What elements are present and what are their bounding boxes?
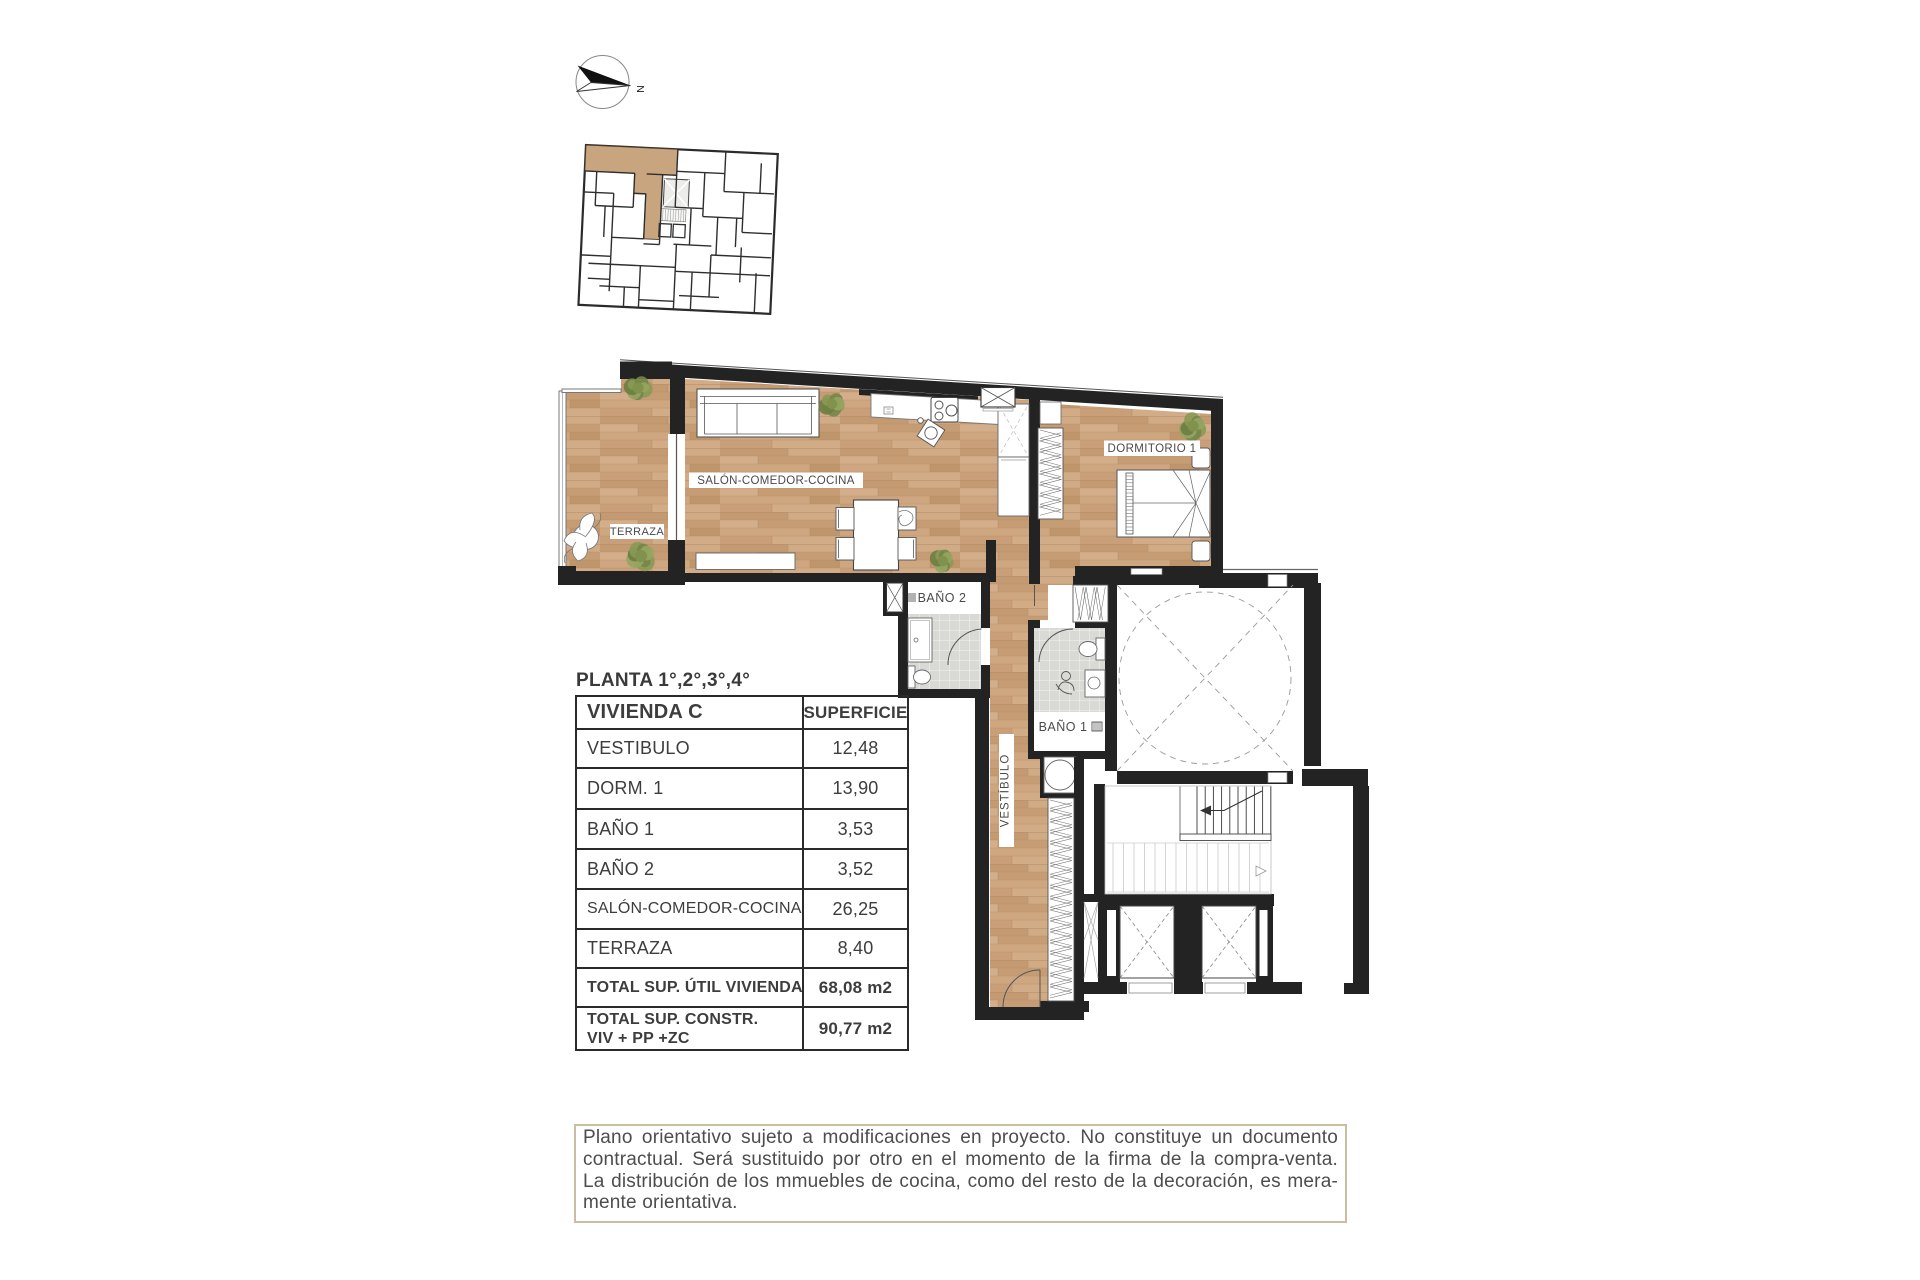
svg-text:SALÓN-COMEDOR-COCINA: SALÓN-COMEDOR-COCINA bbox=[697, 474, 854, 487]
svg-text:N: N bbox=[634, 85, 646, 93]
svg-text:BAÑO 2: BAÑO 2 bbox=[918, 591, 967, 605]
svg-text:TERRAZA: TERRAZA bbox=[610, 526, 664, 538]
svg-text:VESTÍBULO: VESTÍBULO bbox=[999, 754, 1012, 828]
svg-text:BAÑO 1: BAÑO 1 bbox=[1039, 720, 1088, 734]
svg-text:DORMITORIO 1: DORMITORIO 1 bbox=[1108, 443, 1197, 455]
